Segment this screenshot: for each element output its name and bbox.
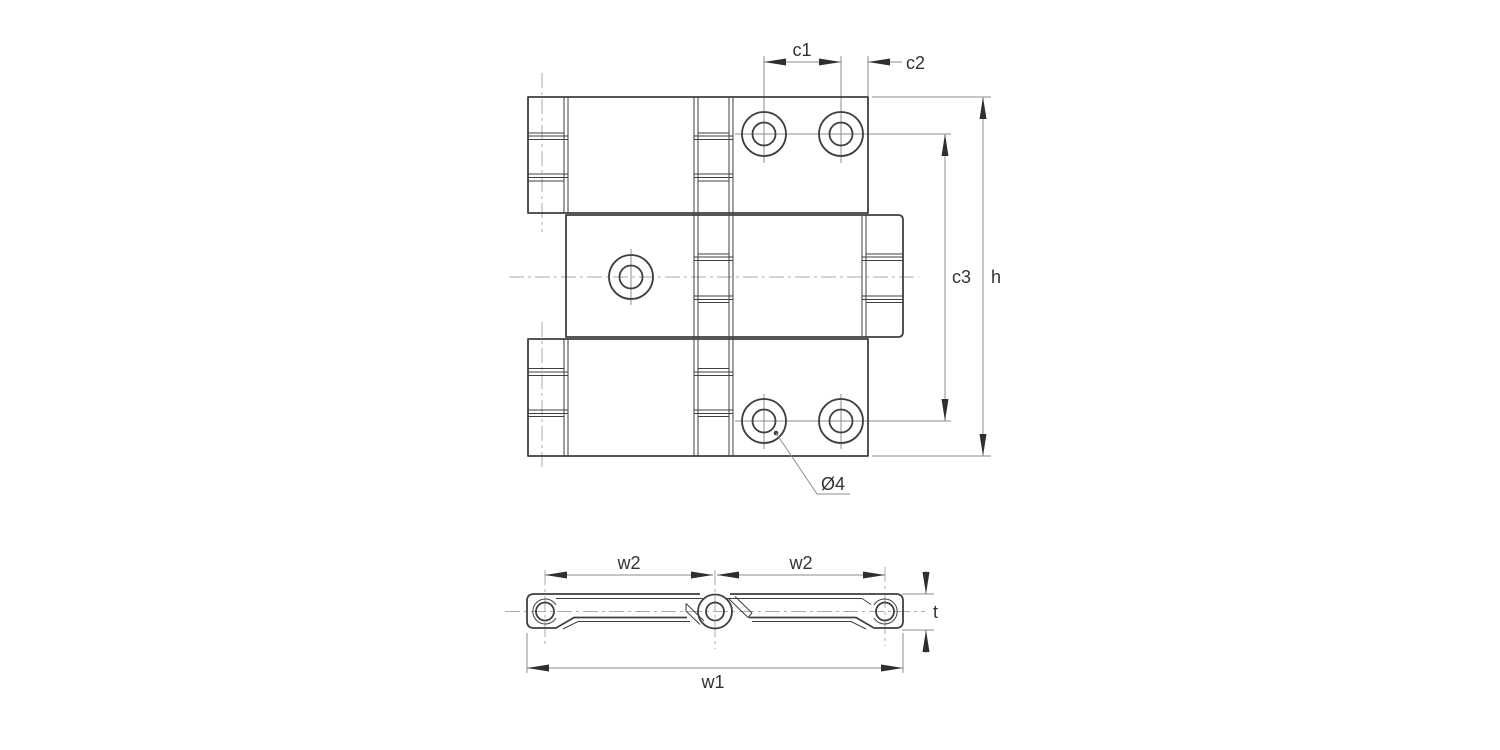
extension-lines — [631, 56, 991, 456]
side-view: w2 w2 w1 t — [505, 553, 938, 692]
side-centerlines — [505, 567, 925, 649]
dimension-c1: c1 — [764, 40, 841, 66]
dim-label-w2-left: w2 — [616, 553, 640, 573]
dim-label-w2-right: w2 — [788, 553, 812, 573]
drawing-canvas: c1 c2 c3 h Ø4 — [0, 0, 1500, 750]
dimension-hole-dia: Ø4 — [774, 431, 850, 494]
dim-label-c1: c1 — [792, 40, 811, 60]
dim-label-hole-dia: Ø4 — [821, 474, 845, 494]
dimension-h: h — [980, 97, 1002, 456]
middle-leaf-outline — [566, 215, 903, 337]
leaf-outlines — [528, 97, 903, 456]
dimension-w2-right: w2 — [717, 553, 885, 579]
dim-label-c2: c2 — [906, 53, 925, 73]
dim-label-t: t — [933, 602, 938, 622]
dimension-c2: c2 — [868, 53, 925, 73]
technical-drawing: c1 c2 c3 h Ø4 — [0, 0, 1500, 750]
dimension-c3: c3 — [942, 134, 972, 421]
centerlines — [509, 73, 919, 468]
dimension-w2-left: w2 — [545, 553, 713, 579]
dim-label-w1: w1 — [700, 672, 724, 692]
dim-label-c3: c3 — [952, 267, 971, 287]
dim-label-h: h — [991, 267, 1001, 287]
top-view: c1 c2 c3 h Ø4 — [509, 40, 1001, 494]
knuckle-details — [528, 97, 903, 456]
